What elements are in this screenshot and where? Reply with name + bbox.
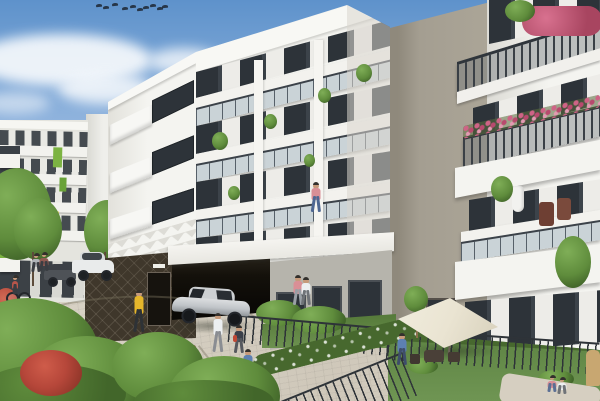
young-tree [404, 286, 428, 312]
bird-icon [143, 6, 149, 10]
white-vase [512, 186, 524, 212]
garden-chair [448, 352, 460, 362]
small-dog [180, 345, 197, 357]
rooftop-plant [505, 0, 535, 22]
bird-icon [130, 5, 136, 9]
terrace-chair [539, 202, 554, 226]
terrace-chair [557, 198, 571, 220]
bird-icon [112, 3, 118, 7]
resident-yellow-jacket [133, 291, 145, 333]
balcony-plant-right [491, 176, 513, 202]
tree [14, 198, 62, 260]
bird-icon [122, 7, 128, 11]
garden-chair [410, 354, 420, 364]
tall-plant-right [555, 236, 591, 288]
bird-icon [150, 4, 156, 8]
garden-woman [396, 334, 408, 366]
cyclist-blue-dress [228, 350, 274, 400]
couple-by-shrubs [300, 278, 312, 306]
balcony-resident-pink-shirt [310, 183, 322, 212]
accent-panel-green [59, 177, 66, 191]
garden-table [424, 350, 444, 362]
distant-cyclist [6, 276, 28, 302]
bird-icon [103, 6, 109, 10]
woman-walking [212, 314, 224, 352]
architectural-rendering [0, 0, 600, 401]
edge-slab [0, 258, 20, 272]
accent-panel-green [53, 147, 62, 167]
bird-icon [162, 5, 168, 9]
red-backpack [233, 335, 237, 342]
edge-slab [0, 154, 20, 168]
parked-white-suv [72, 250, 114, 280]
bird-icon [96, 4, 102, 8]
child-with-backpack [233, 326, 245, 353]
left-bldg-cornice [0, 120, 88, 130]
wicker-chair [586, 350, 600, 386]
pedestrians-near-left-building [38, 253, 50, 271]
children-in-garden [556, 378, 568, 394]
